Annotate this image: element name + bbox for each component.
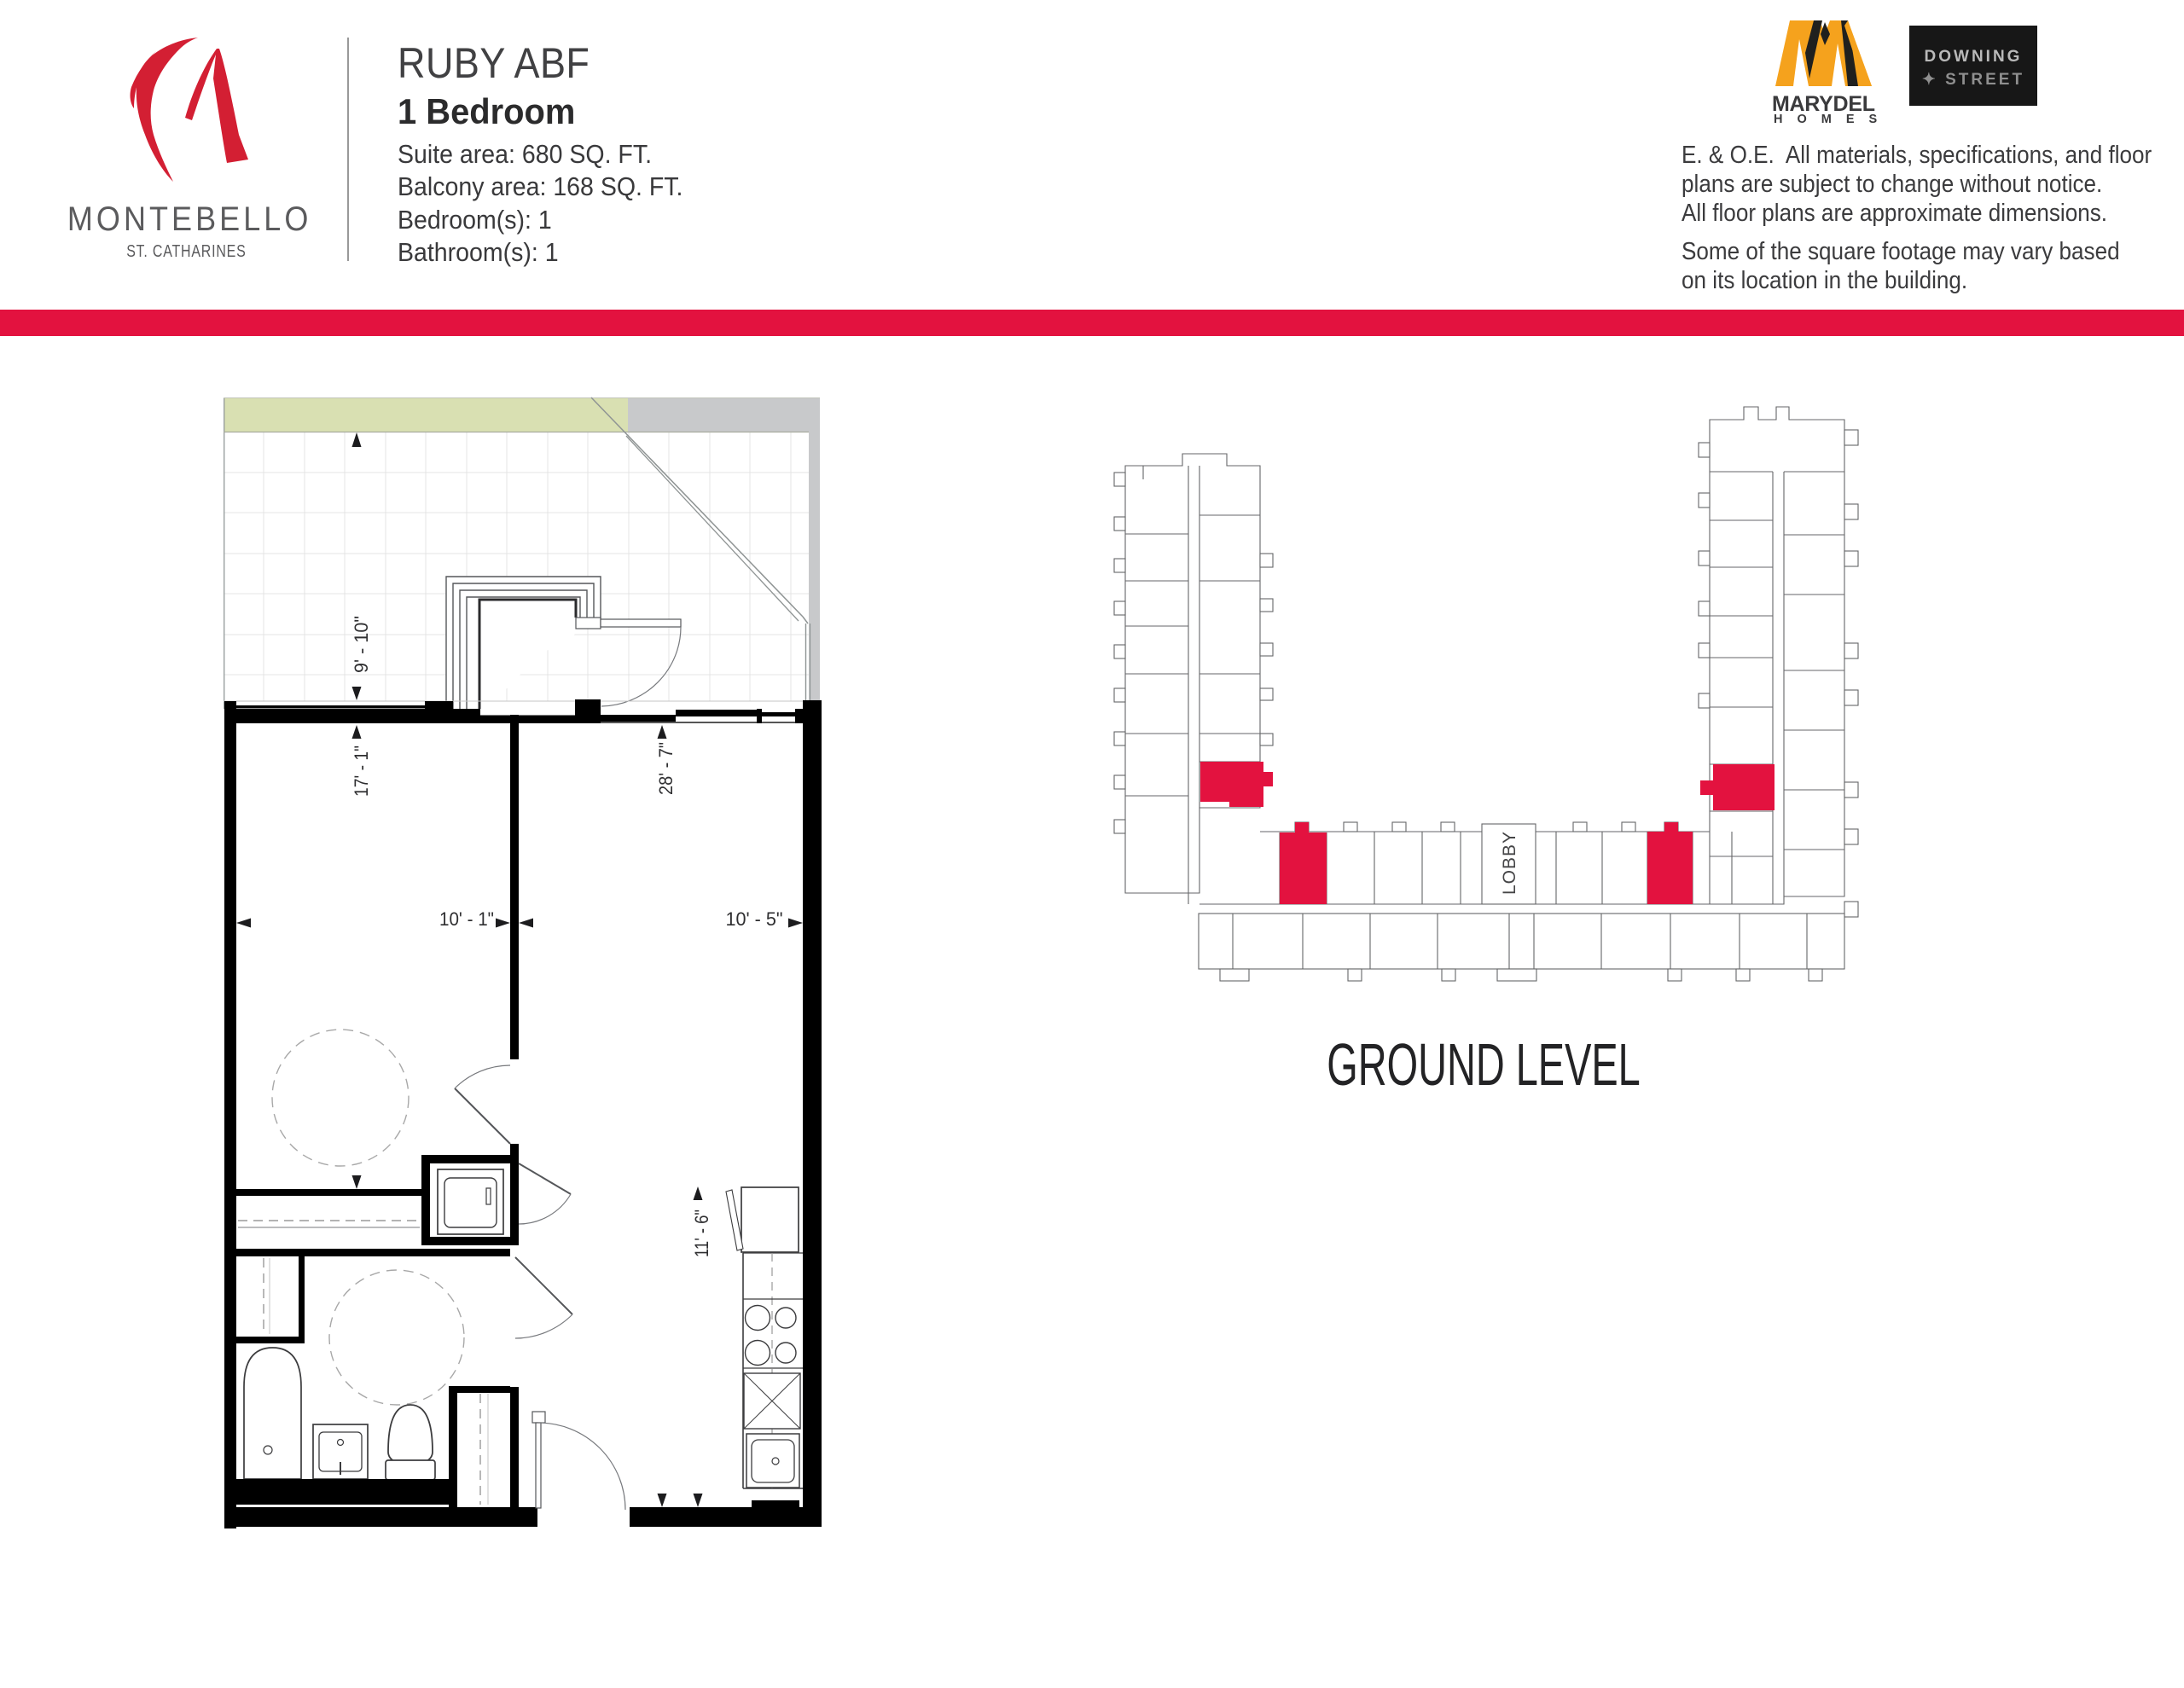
svg-text:28' - 7": 28' - 7" xyxy=(655,742,677,795)
svg-text:17' - 1": 17' - 1" xyxy=(351,745,372,797)
svg-text:10' - 5": 10' - 5" xyxy=(726,908,783,930)
svg-text:11' - 6": 11' - 6" xyxy=(691,1209,712,1257)
svg-text:9' - 10": 9' - 10" xyxy=(351,616,372,673)
svg-text:LOBBY: LOBBY xyxy=(1500,831,1519,895)
svg-text:HOMES: HOMES xyxy=(1774,113,1880,123)
svg-text:10' - 1": 10' - 1" xyxy=(439,908,494,930)
